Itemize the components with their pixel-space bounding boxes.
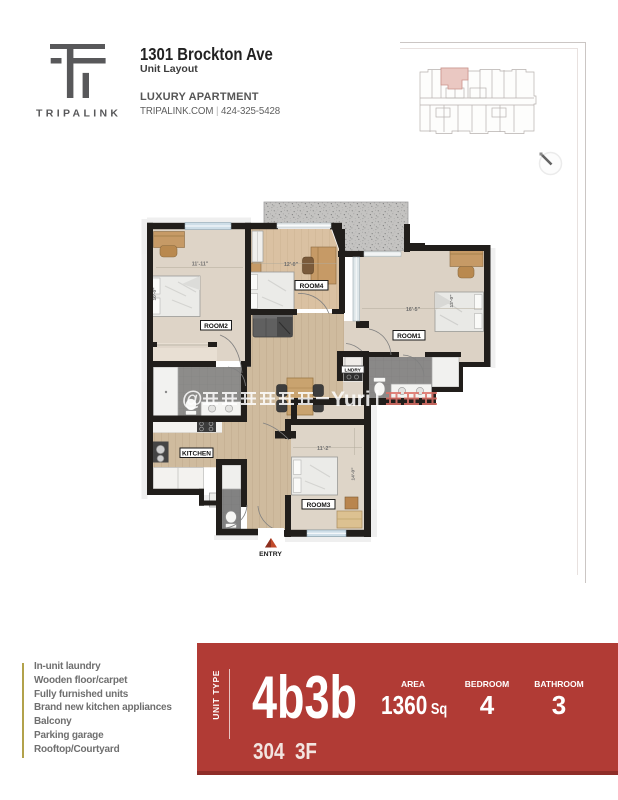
svg-text:Yuri: Yuri: [331, 388, 371, 411]
svg-text:@: @: [182, 388, 202, 411]
